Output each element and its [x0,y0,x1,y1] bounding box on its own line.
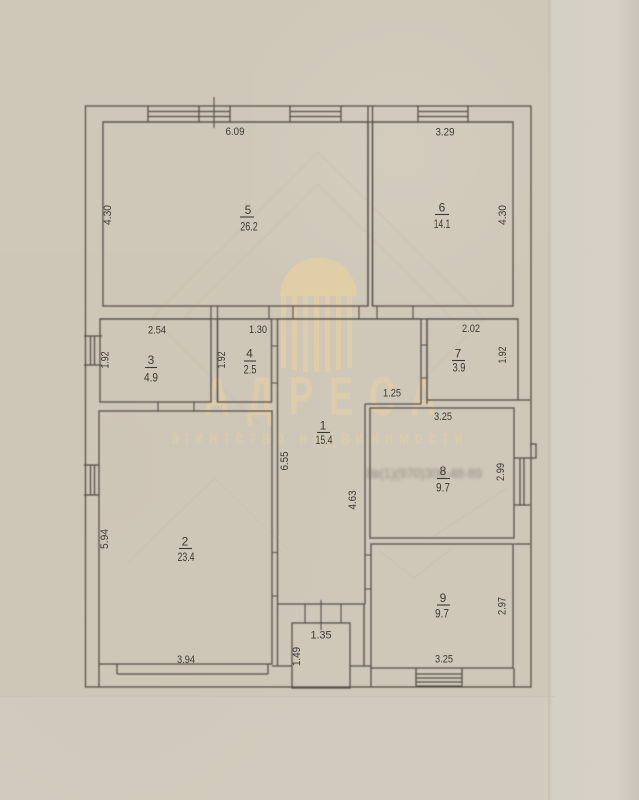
svg-text:5.94: 5.94 [99,529,111,549]
svg-text:2.97: 2.97 [497,597,509,615]
svg-text:23.4: 23.4 [178,550,195,564]
svg-text:15.4: 15.4 [316,433,333,447]
svg-text:26.2: 26.2 [240,220,258,234]
svg-text:3: 3 [148,353,155,367]
svg-text:6.09: 6.09 [226,126,245,138]
svg-text:8: 8 [440,464,447,478]
svg-text:4.63: 4.63 [347,491,359,510]
svg-text:5: 5 [245,203,252,217]
svg-text:6.55: 6.55 [279,452,291,471]
svg-text:1.92: 1.92 [100,352,112,369]
svg-text:6: 6 [439,201,446,215]
svg-text:1.30: 1.30 [249,324,267,336]
svg-text:3.94: 3.94 [177,654,195,666]
svg-text:9.7: 9.7 [435,607,449,621]
svg-text:3.25: 3.25 [434,411,452,423]
svg-text:1.49: 1.49 [291,647,303,666]
svg-text:3.9: 3.9 [453,361,466,375]
svg-text:7: 7 [455,347,462,361]
svg-text:14.1: 14.1 [434,217,451,231]
svg-text:1.92: 1.92 [216,352,228,369]
svg-text:4.9: 4.9 [144,371,158,385]
svg-text:2.99: 2.99 [495,463,507,481]
svg-text:1.35: 1.35 [311,630,332,642]
svg-text:1: 1 [320,419,327,433]
svg-text:9: 9 [440,591,447,605]
svg-text:АДРЕСА: АДРЕСА [204,365,452,426]
svg-text:3.29: 3.29 [436,127,455,139]
svg-text:2.02: 2.02 [462,323,480,335]
svg-text:4.30: 4.30 [497,205,509,225]
svg-text:2.54: 2.54 [148,325,166,337]
svg-text:4.30: 4.30 [102,205,114,225]
svg-text:1.25: 1.25 [383,388,401,400]
svg-text:4: 4 [246,347,253,361]
svg-text:3.25: 3.25 [435,654,453,666]
svg-text:1.92: 1.92 [497,347,509,364]
svg-text:2.5: 2.5 [244,363,257,377]
svg-text:2: 2 [182,535,189,549]
svg-text:9.7: 9.7 [436,481,450,495]
svg-text:8в(1)(970)306-48-89: 8в(1)(970)306-48-89 [366,466,482,481]
